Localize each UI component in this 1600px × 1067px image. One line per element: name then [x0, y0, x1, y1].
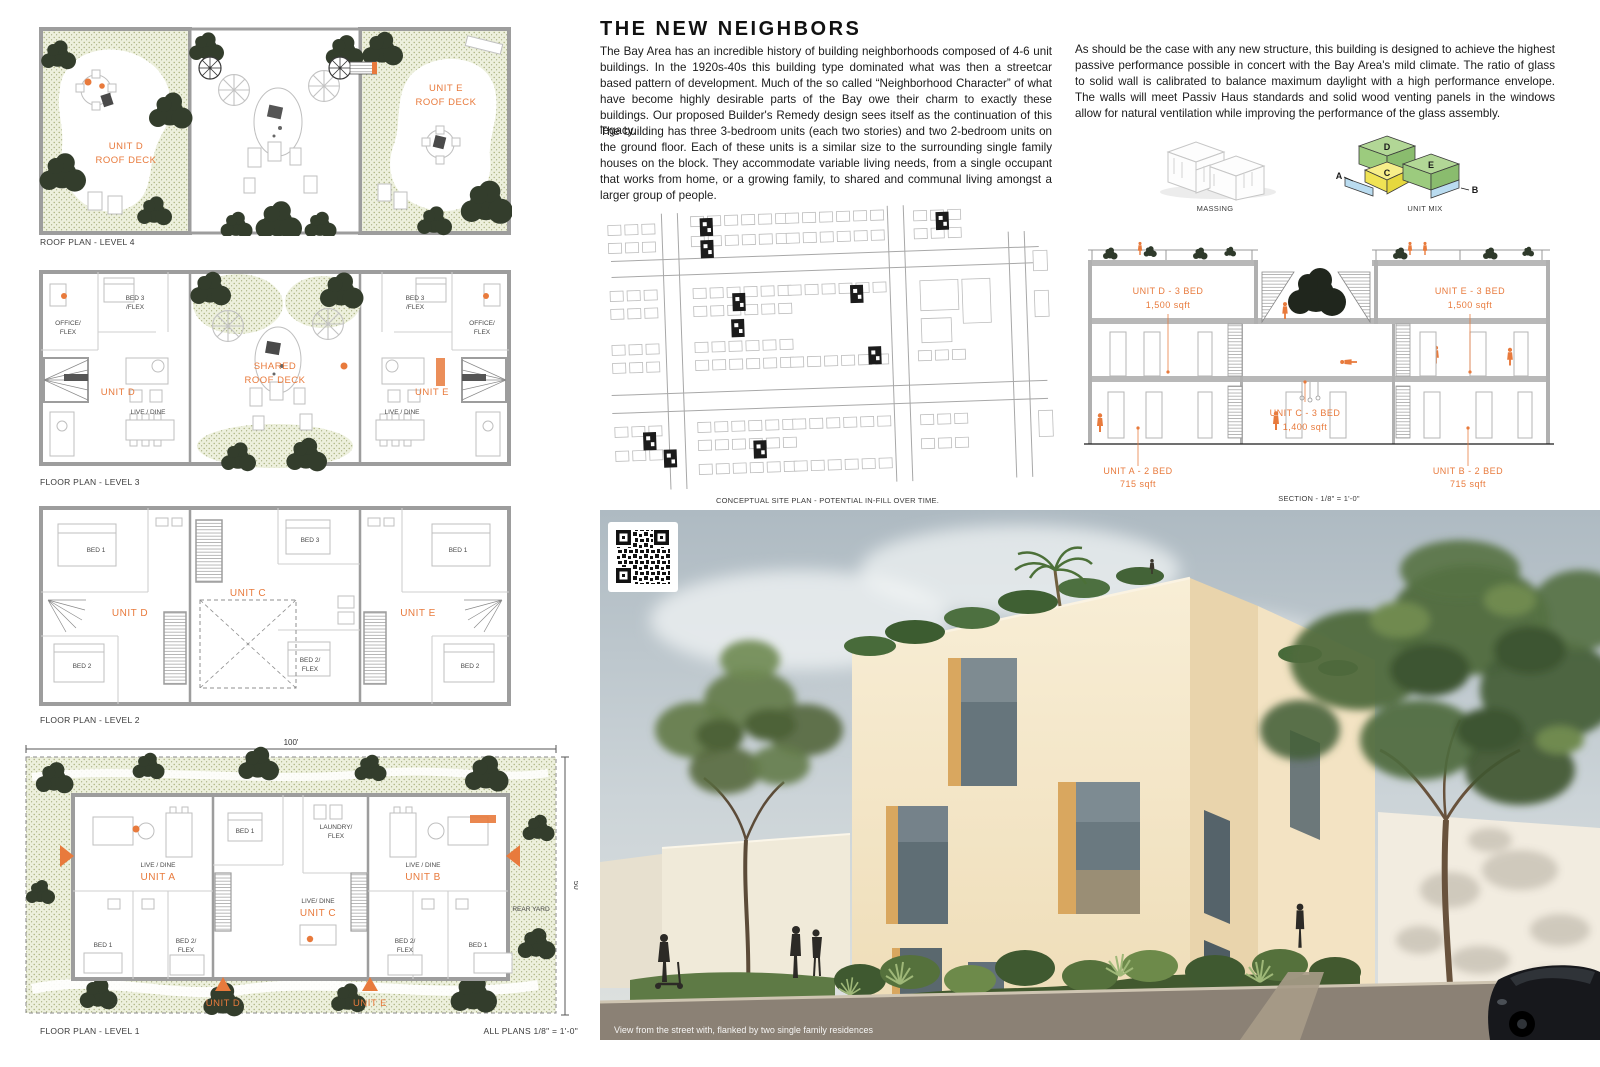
- unitmix-letter-a: A: [1336, 171, 1343, 181]
- l2-unit-d: UNIT D: [112, 608, 148, 619]
- section-unit-e-name: UNIT E - 3 BED: [1435, 286, 1505, 296]
- l1-bed1-right: BED 1: [469, 942, 488, 949]
- unitmix-letter-c: C: [1384, 168, 1391, 178]
- level3-caption: FLOOR PLAN - LEVEL 3: [40, 477, 140, 487]
- roof-plan-level4-drawing: UNIT D ROOF DECK UNIT E ROOF DECK: [38, 26, 512, 236]
- render-caption: View from the street with, flanked by tw…: [614, 1025, 873, 1035]
- l3-shared-label2: ROOF DECK: [245, 375, 306, 386]
- l2-bed2flex2: FLEX: [302, 666, 319, 673]
- l2-bed2flex: BED 2/: [300, 657, 321, 664]
- l1-livedine-c: LIVE/ DINE: [301, 898, 335, 905]
- unitmix-letter-e: E: [1428, 160, 1434, 170]
- massing-diagram: [1140, 130, 1290, 202]
- l3-bed3-label2: /FLEX: [126, 304, 145, 311]
- presentation-board: UNIT D ROOF DECK UNIT E ROOF DECK ROOF P…: [0, 0, 1600, 1067]
- unit-mix-caption: UNIT MIX: [1335, 204, 1515, 213]
- l3-unit-e-label: UNIT E: [415, 387, 449, 398]
- section-unit-c-area: 1,400 sqft: [1283, 422, 1328, 432]
- passive-paragraph: As should be the case with any new struc…: [1075, 42, 1555, 121]
- section-unit-b-area: 715 sqft: [1450, 479, 1486, 489]
- l3-shared-label: SHARED: [254, 361, 297, 372]
- unitmix-letter-d: D: [1384, 142, 1391, 152]
- l1-dim-100: 100': [284, 738, 299, 747]
- l2-bed2-left: BED 2: [73, 663, 92, 670]
- site-plan-houses: [608, 204, 1055, 477]
- l2-bed3: BED 3: [301, 537, 320, 544]
- l3-office-label: OFFICE/: [55, 320, 81, 327]
- l2-bed1-left: BED 1: [87, 547, 106, 554]
- l2-unit-c: UNIT C: [230, 588, 266, 599]
- l3-office-label-r: OFFICE/: [469, 320, 495, 327]
- floor-plan-level1-drawing: 100' 50': [18, 733, 578, 1021]
- l1-bed2flex-r: BED 2/: [395, 938, 416, 945]
- qr-code-icon: [608, 522, 678, 592]
- l2-bed2-right: BED 2: [461, 663, 480, 670]
- section-unit-b-name: UNIT B - 2 BED: [1433, 466, 1503, 476]
- l3-bed3-label2-r: /FLEX: [406, 304, 425, 311]
- street-view-render: View from the street with, flanked by tw…: [600, 510, 1600, 1040]
- roofplan-unit-d-label: UNIT D: [109, 141, 144, 152]
- roofplan-unit-e-label2: ROOF DECK: [416, 97, 477, 108]
- site-plan-infill-buildings: [636, 210, 957, 469]
- level2-caption: FLOOR PLAN - LEVEL 2: [40, 715, 140, 725]
- l2-bed1-right: BED 1: [449, 547, 468, 554]
- l1-bed2flex-l: BED 2/: [176, 938, 197, 945]
- l3-bed3-label-r: BED 3: [406, 295, 425, 302]
- l1-dim-50: 50': [572, 881, 578, 892]
- floor-plan-level3-drawing: OFFICE/ FLEX BED 3 /FLEX BED 3 /FLEX OFF…: [38, 262, 512, 474]
- l1-bed2flex-r2: FLEX: [397, 947, 414, 954]
- l1-laundry: LAUNDRY/: [320, 824, 353, 831]
- section-unit-d-area: 1,500 sqft: [1146, 300, 1191, 310]
- l1-livedine-b: LIVE / DINE: [405, 862, 441, 869]
- l2-unit-e: UNIT E: [400, 608, 436, 619]
- section-unit-e-area: 1,500 sqft: [1448, 300, 1493, 310]
- left-far-wall: [600, 854, 662, 988]
- section-unit-a-area: 715 sqft: [1120, 479, 1156, 489]
- conceptual-site-plan: [600, 198, 1055, 490]
- l1-livedine-a: LIVE / DINE: [140, 862, 176, 869]
- l3-office-label2: FLEX: [60, 329, 77, 336]
- l1-bed1-left: BED 1: [94, 942, 113, 949]
- l1-bed1-c: BED 1: [236, 828, 255, 835]
- l1-bed2flex-l2: FLEX: [178, 947, 195, 954]
- site-plan-caption: CONCEPTUAL SITE PLAN - POTENTIAL IN-FILL…: [600, 496, 1055, 505]
- section-drawing: UNIT D - 3 BED 1,500 sqft UNIT E - 3 BED…: [1080, 232, 1558, 490]
- section-unit-c-name: UNIT C - 3 BED: [1270, 408, 1341, 418]
- roofplan-unit-d-label2: ROOF DECK: [96, 155, 157, 166]
- page-title: THE NEW NEIGHBORS: [600, 18, 861, 41]
- unit-mix-diagram: A B C D E: [1335, 128, 1515, 204]
- l3-unit-d-label: UNIT D: [101, 387, 136, 398]
- left-neighbor-building: [662, 834, 850, 988]
- l1-rear-yard: REAR YARD: [512, 906, 550, 913]
- l1-unit-d: UNIT D: [206, 998, 241, 1009]
- floor-plan-level2-drawing: BED 1 BED 1 BED 3 BED 2 BED 2 BED 2/ FLE…: [38, 500, 512, 712]
- intro-paragraph-2: The building has three 3-bedroom units (…: [600, 124, 1052, 203]
- unitmix-letter-b: B: [1472, 185, 1479, 195]
- l1-unit-a: UNIT A: [140, 872, 175, 883]
- section-caption: SECTION - 1/8" = 1'-0": [1080, 494, 1558, 503]
- massing-caption: MASSING: [1140, 204, 1290, 213]
- l3-livedine-label: LIVE / DINE: [130, 409, 166, 416]
- roof-plan-caption: ROOF PLAN - LEVEL 4: [40, 237, 135, 247]
- l1-unit-c: UNIT C: [300, 908, 336, 919]
- l1-laundry2: FLEX: [328, 833, 345, 840]
- l3-livedine-label-r: LIVE / DINE: [384, 409, 420, 416]
- section-unit-d-name: UNIT D - 3 BED: [1133, 286, 1204, 296]
- l3-office-label2-r: FLEX: [474, 329, 491, 336]
- roofplan-unit-e-label: UNIT E: [429, 83, 463, 94]
- section-unit-a-name: UNIT A - 2 BED: [1103, 466, 1172, 476]
- l1-unit-b: UNIT B: [405, 872, 441, 883]
- l1-unit-e: UNIT E: [353, 998, 387, 1009]
- l3-bed3-label: BED 3: [126, 295, 145, 302]
- level1-caption: FLOOR PLAN - LEVEL 1: [40, 1026, 140, 1036]
- plans-scale-note: ALL PLANS 1/8" = 1'-0": [330, 1026, 578, 1036]
